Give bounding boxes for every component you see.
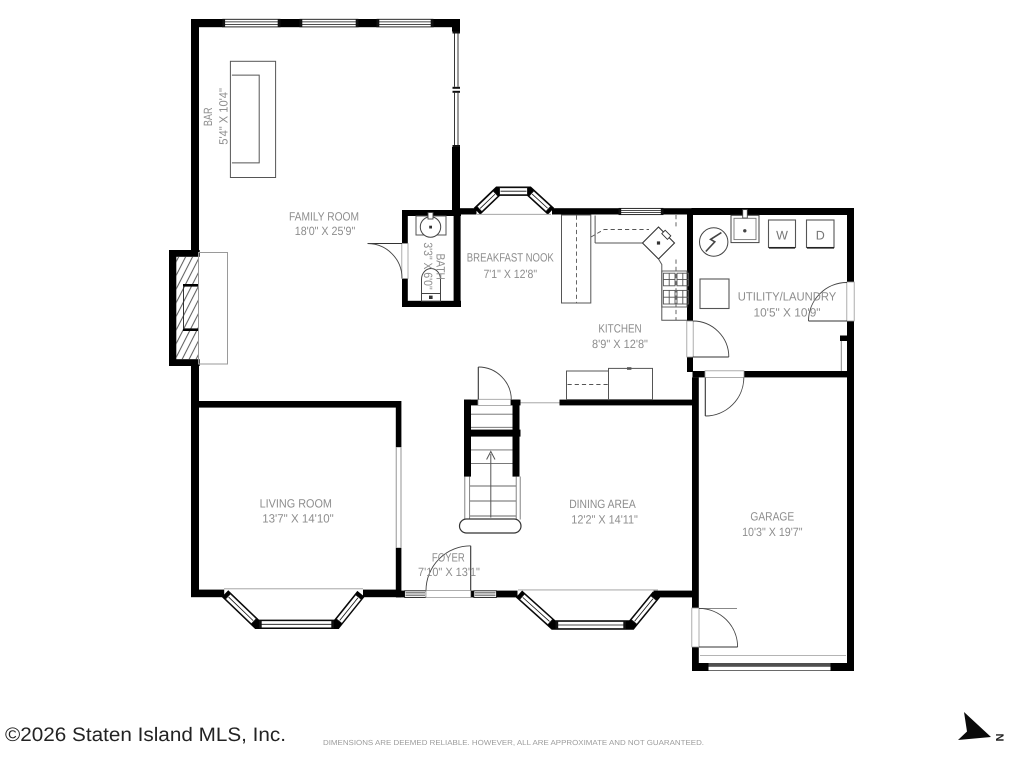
- svg-text:FAMILY ROOM: FAMILY ROOM: [289, 209, 359, 223]
- svg-text:7'10" X 13'1": 7'10" X 13'1": [418, 565, 480, 579]
- svg-text:5'4" X 10'4": 5'4" X 10'4": [216, 88, 230, 145]
- svg-text:13'7" X 14'10": 13'7" X 14'10": [262, 512, 334, 526]
- svg-text:LIVING ROOM: LIVING ROOM: [260, 496, 332, 510]
- svg-text:UTILITY/LAUNDRY: UTILITY/LAUNDRY: [738, 290, 837, 304]
- svg-text:D: D: [816, 229, 825, 243]
- svg-text:BREAKFAST NOOK: BREAKFAST NOOK: [467, 251, 554, 265]
- svg-text:GARAGE: GARAGE: [750, 509, 794, 523]
- svg-text:FOYER: FOYER: [432, 551, 465, 565]
- svg-text:BAR: BAR: [201, 107, 215, 126]
- svg-text:10'3" X 19'7": 10'3" X 19'7": [742, 525, 802, 539]
- svg-text:10'5" X 10'9": 10'5" X 10'9": [754, 305, 821, 319]
- svg-text:8'9" X 12'8": 8'9" X 12'8": [592, 337, 648, 351]
- svg-text:N: N: [993, 734, 1005, 742]
- svg-text:KITCHEN: KITCHEN: [598, 321, 641, 335]
- svg-text:18'0" X 25'9": 18'0" X 25'9": [295, 224, 356, 238]
- svg-text:DINING AREA: DINING AREA: [569, 497, 636, 511]
- svg-text:DIMENSIONS ARE DEEMED RELIABLE: DIMENSIONS ARE DEEMED RELIABLE. HOWEVER,…: [323, 738, 704, 747]
- svg-text:12'2" X 14'11": 12'2" X 14'11": [571, 512, 638, 526]
- svg-text:W: W: [776, 229, 788, 243]
- svg-text:7'1" X 12'8": 7'1" X 12'8": [483, 267, 537, 281]
- svg-text:©2026 Staten Island MLS, Inc.: ©2026 Staten Island MLS, Inc.: [5, 724, 286, 746]
- svg-text:3'3" X 6'0": 3'3" X 6'0": [421, 242, 435, 289]
